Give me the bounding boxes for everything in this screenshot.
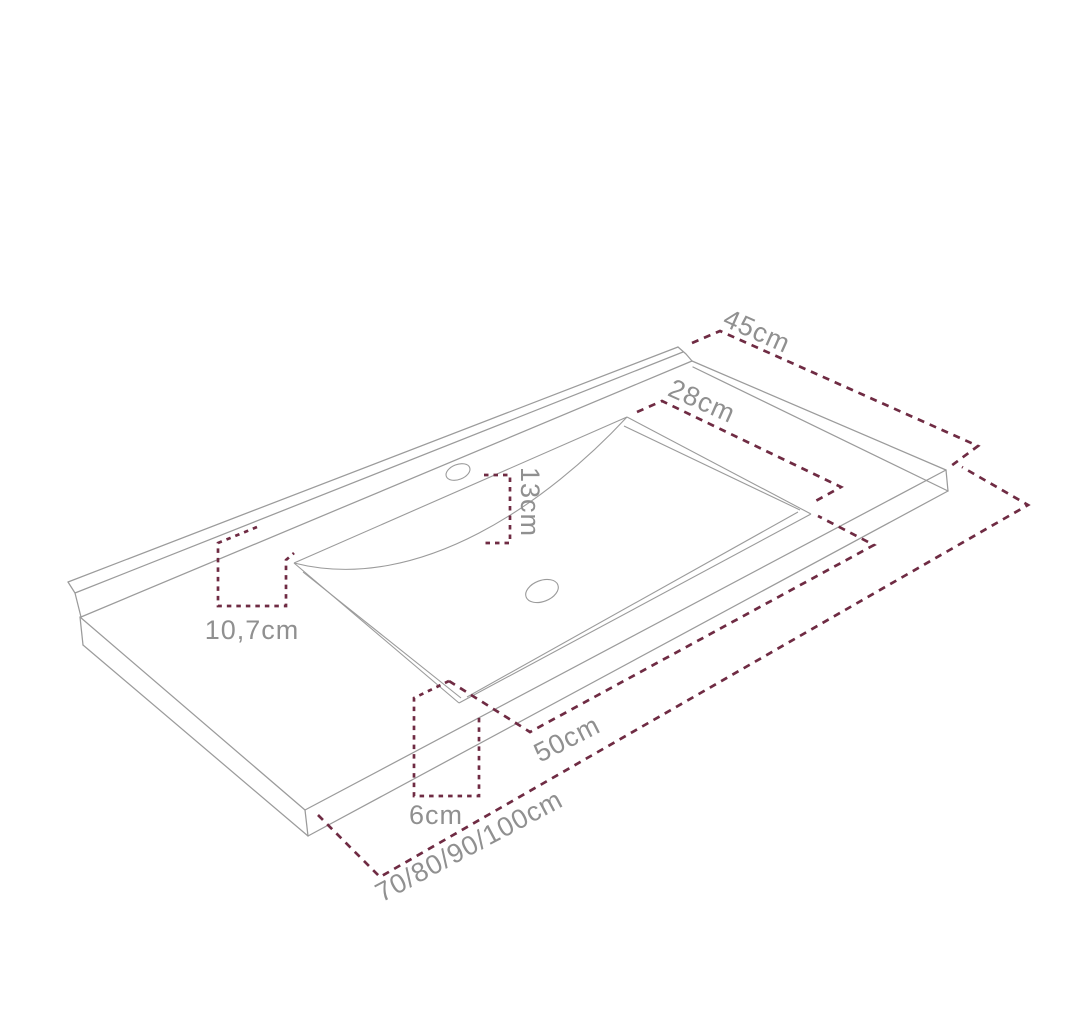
- basin-inner-front-edge: [467, 512, 798, 697]
- dimension-line-10-7cm: [218, 527, 294, 606]
- dimension-label-6cm: 6cm: [409, 800, 463, 830]
- slab-front-top-edge: [305, 470, 946, 810]
- dimension-line-13cm: [484, 475, 510, 543]
- washbasin-technical-drawing: 45cm 28cm 13cm 10,7cm 50cm 6cm 70/80/90/…: [0, 0, 1075, 1017]
- backsplash-right-end: [678, 347, 692, 361]
- slab-right-corner-edge: [946, 470, 948, 491]
- backsplash-top-ridge: [68, 347, 678, 582]
- dimension-label-13cm: 13cm: [515, 467, 545, 537]
- slab-left-bottom-edge: [83, 645, 308, 836]
- backsplash: [68, 347, 692, 617]
- basin-inner-left-edge: [303, 572, 461, 698]
- dimension-label-50cm: 50cm: [529, 710, 605, 769]
- slab-front-bottom-edge: [308, 491, 948, 836]
- slab-left-corner-edge: [80, 617, 83, 645]
- basin: [294, 417, 811, 703]
- slab: [80, 361, 948, 836]
- dimension-labels: 45cm 28cm 13cm 10,7cm 50cm 6cm 70/80/90/…: [205, 303, 795, 908]
- dimension-label-70-80-90-100cm: 70/80/90/100cm: [370, 784, 567, 908]
- dimension-line-6cm: [414, 681, 479, 796]
- backsplash-base-edge: [81, 361, 692, 617]
- drawing-canvas: 45cm 28cm 13cm 10,7cm 50cm 6cm 70/80/90/…: [0, 0, 1075, 1017]
- faucet-hole: [444, 461, 473, 484]
- basin-inner-right-edge: [624, 426, 800, 510]
- dimension-lines: [218, 331, 1028, 877]
- slab-front-corner-edge: [305, 810, 308, 836]
- basin-back-rim: [294, 417, 627, 563]
- dimension-label-10-7cm: 10,7cm: [205, 615, 300, 645]
- dimension-label-45cm: 45cm: [719, 303, 795, 359]
- countertop-outline: [68, 347, 948, 836]
- drain-hole: [522, 575, 561, 607]
- dimension-line-28cm: [637, 401, 841, 503]
- backsplash-front-ridge: [75, 352, 683, 593]
- basin-right-rim: [627, 417, 811, 514]
- backsplash-left-end: [68, 582, 81, 617]
- slab-left-top-edge: [80, 617, 305, 810]
